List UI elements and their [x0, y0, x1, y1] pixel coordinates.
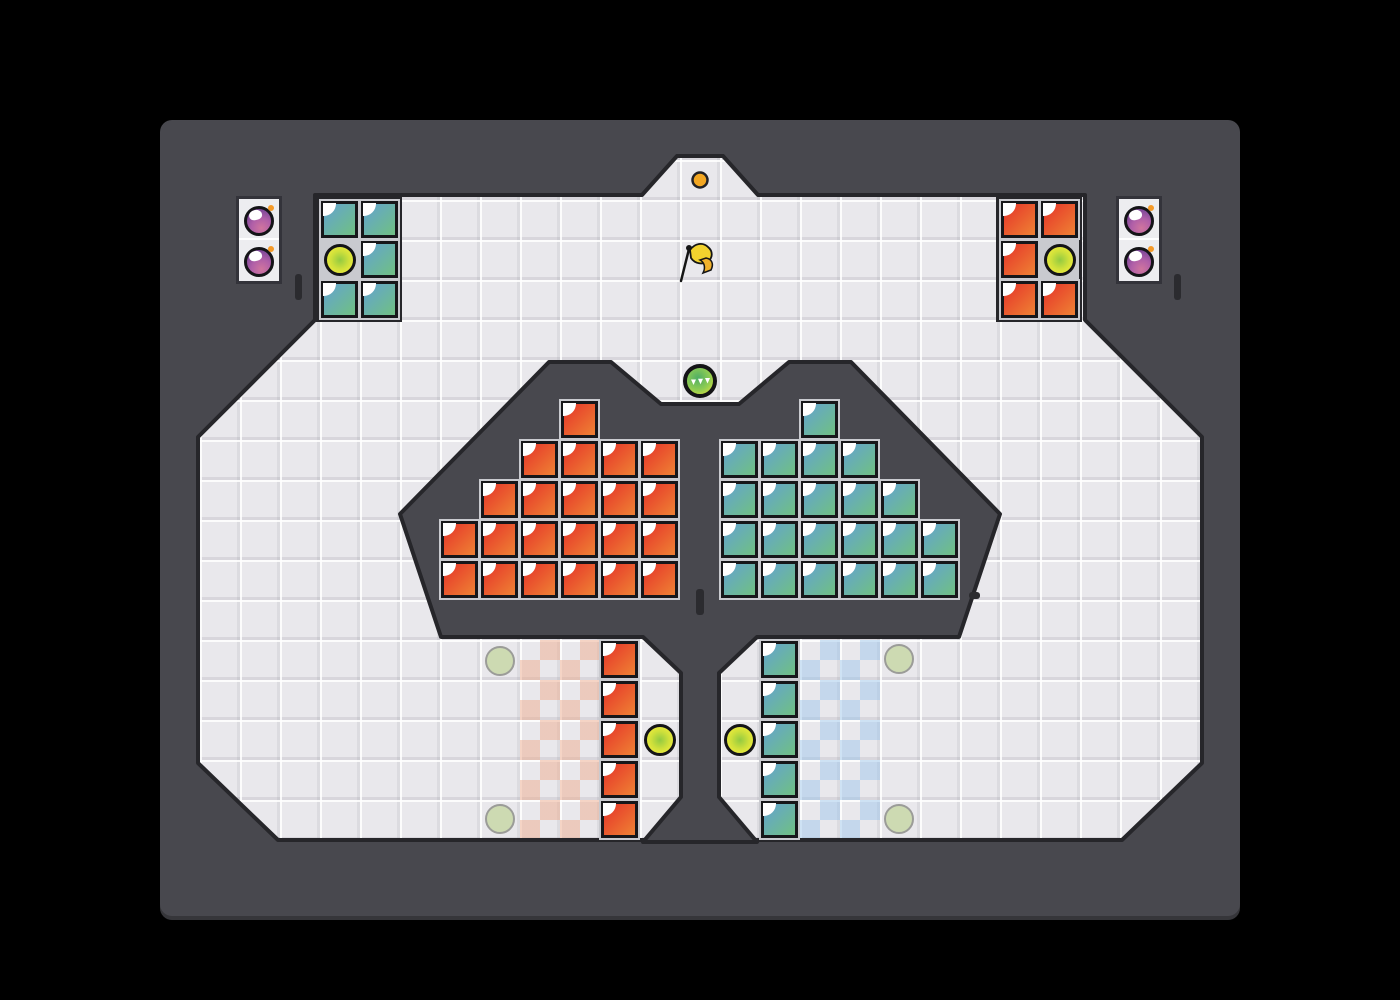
teal-block[interactable]: [801, 521, 838, 558]
red-block[interactable]: [521, 521, 558, 558]
fast-forward-icon: [690, 377, 710, 386]
teal-block[interactable]: [361, 241, 398, 278]
wall-tick-marker: [295, 274, 302, 300]
teal-block[interactable]: [721, 441, 758, 478]
teal-block[interactable]: [801, 561, 838, 598]
red-block[interactable]: [641, 441, 678, 478]
teal-block[interactable]: [761, 481, 798, 518]
red-block[interactable]: [561, 441, 598, 478]
red-block[interactable]: [521, 481, 558, 518]
teal-block[interactable]: [361, 281, 398, 318]
bomb[interactable]: [244, 206, 274, 236]
red-block[interactable]: [601, 521, 638, 558]
wall-tick-marker: [969, 592, 980, 599]
game-stage: [0, 0, 1400, 1000]
teal-block[interactable]: [841, 481, 878, 518]
teal-block[interactable]: [761, 441, 798, 478]
red-block[interactable]: [601, 441, 638, 478]
red-block[interactable]: [601, 761, 638, 798]
spawn-circle: [884, 644, 914, 674]
powerup-orb-yellow[interactable]: [324, 244, 356, 276]
teal-block[interactable]: [761, 801, 798, 838]
bomb[interactable]: [1124, 247, 1154, 277]
powerup-orb-yellow[interactable]: [724, 724, 756, 756]
teal-block[interactable]: [881, 521, 918, 558]
teal-block[interactable]: [881, 481, 918, 518]
teal-block[interactable]: [921, 561, 958, 598]
teal-block[interactable]: [801, 441, 838, 478]
red-block[interactable]: [601, 641, 638, 678]
teal-block[interactable]: [321, 201, 358, 238]
red-block[interactable]: [521, 561, 558, 598]
bomb[interactable]: [244, 247, 274, 277]
spawn-circle: [485, 804, 515, 834]
red-block[interactable]: [561, 561, 598, 598]
red-block[interactable]: [1001, 241, 1038, 278]
teal-block[interactable]: [761, 721, 798, 758]
teal-block[interactable]: [761, 761, 798, 798]
teal-block[interactable]: [761, 681, 798, 718]
red-block[interactable]: [641, 561, 678, 598]
boost-orb[interactable]: [683, 364, 717, 398]
powerup-orb-yellow[interactable]: [1044, 244, 1076, 276]
teal-block[interactable]: [801, 401, 838, 438]
teal-block[interactable]: [761, 641, 798, 678]
red-block[interactable]: [1001, 201, 1038, 238]
teal-block[interactable]: [761, 561, 798, 598]
red-block[interactable]: [1041, 281, 1078, 318]
bomb[interactable]: [1124, 206, 1154, 236]
red-block[interactable]: [641, 521, 678, 558]
red-block[interactable]: [561, 521, 598, 558]
wall-tick-marker: [1174, 274, 1181, 300]
red-block[interactable]: [561, 481, 598, 518]
teal-block[interactable]: [321, 281, 358, 318]
red-block[interactable]: [481, 481, 518, 518]
alcove-dot: [693, 173, 708, 188]
teal-block[interactable]: [881, 561, 918, 598]
red-block[interactable]: [1041, 201, 1078, 238]
red-block[interactable]: [1001, 281, 1038, 318]
red-block[interactable]: [601, 561, 638, 598]
spawn-circle: [485, 646, 515, 676]
wall-tick-marker: [696, 589, 704, 615]
teal-block[interactable]: [361, 201, 398, 238]
arena-overlay: [0, 0, 1400, 1000]
red-block[interactable]: [561, 401, 598, 438]
red-block[interactable]: [441, 521, 478, 558]
red-block[interactable]: [521, 441, 558, 478]
red-block[interactable]: [601, 481, 638, 518]
red-block[interactable]: [641, 481, 678, 518]
teal-block[interactable]: [721, 521, 758, 558]
red-block[interactable]: [481, 521, 518, 558]
teal-block[interactable]: [921, 521, 958, 558]
teal-block[interactable]: [841, 561, 878, 598]
powerup-orb-yellow[interactable]: [644, 724, 676, 756]
spawn-circle: [884, 804, 914, 834]
red-block[interactable]: [601, 681, 638, 718]
red-block[interactable]: [481, 561, 518, 598]
teal-block[interactable]: [801, 481, 838, 518]
teal-block[interactable]: [841, 521, 878, 558]
teal-block[interactable]: [721, 481, 758, 518]
red-block[interactable]: [601, 801, 638, 838]
flag-icon[interactable]: [681, 244, 712, 281]
flag-pole: [681, 249, 689, 281]
red-block[interactable]: [441, 561, 478, 598]
flag-tail: [700, 258, 712, 273]
red-block[interactable]: [601, 721, 638, 758]
teal-block[interactable]: [721, 561, 758, 598]
teal-block[interactable]: [841, 441, 878, 478]
teal-block[interactable]: [761, 521, 798, 558]
